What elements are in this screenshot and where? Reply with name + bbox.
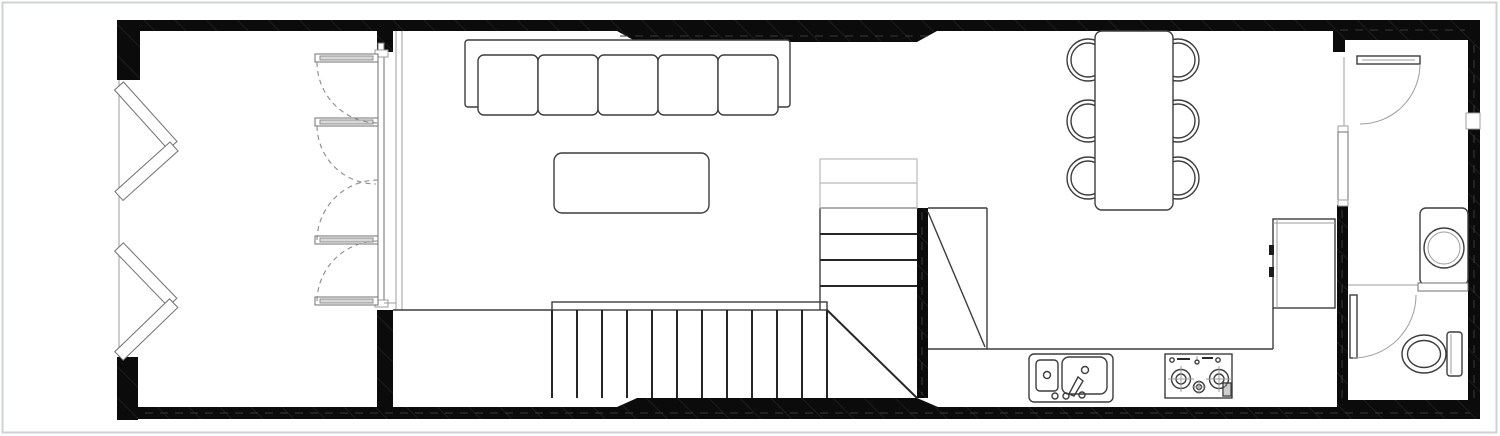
toilet-tank (1447, 332, 1462, 376)
closet-door-1-panel (320, 56, 373, 60)
wall-entry-bottom (377, 310, 393, 407)
wc (1348, 283, 1468, 376)
closet-front-panel (378, 43, 384, 303)
window-chevron-1-upper-bar (115, 82, 177, 149)
wall-top (140, 20, 1333, 31)
window-chevron-1-lower-bar (115, 142, 178, 200)
understair-slope-line (928, 212, 985, 347)
entry (115, 31, 402, 360)
floor-plan (0, 0, 1500, 436)
sofa-cushion-4 (658, 55, 718, 115)
fridge-handle-top (1269, 245, 1274, 255)
closet-door-2-swing (317, 126, 376, 184)
closet-door-4-swing (317, 241, 378, 301)
wall-wc-bottom (1348, 400, 1468, 407)
wc-partition-wall (1418, 283, 1468, 291)
stair-winder-tread (827, 310, 917, 398)
wall-laundry-stub (1333, 40, 1345, 52)
dining-area (1067, 31, 1199, 210)
washing-machine (1420, 208, 1468, 285)
window-chevron-2-lower-bar (115, 299, 178, 360)
dining-table (1095, 31, 1173, 210)
laundry-jamb-bottom (1338, 200, 1348, 206)
laundry-room (1338, 56, 1480, 285)
sofa-cushion-3 (598, 55, 658, 115)
wall-bottom-thick (617, 398, 938, 407)
plan-root (3, 3, 1497, 433)
wall-pillar-top-left (117, 20, 140, 80)
stair-rail (552, 302, 827, 310)
closet-door-4-panel (320, 299, 373, 303)
closet-door-1-swing (317, 62, 378, 123)
wall-pillar-bottom-left (117, 357, 138, 420)
sofa-cushion-2 (538, 55, 598, 115)
floor-plan-canvas (0, 0, 1500, 436)
coffee-table (554, 153, 709, 213)
living-room (465, 40, 790, 213)
sofa-cushion-1 (478, 55, 538, 115)
fridge-handle-bottom (1269, 267, 1274, 277)
laundry-partition-wall (1338, 132, 1348, 200)
wc-door-leaf (1350, 295, 1357, 358)
window-chevron-2-upper-bar (115, 243, 177, 307)
fridge (1273, 219, 1335, 308)
laundry-jamb-top (1338, 126, 1348, 132)
laundry-door-swing (1360, 64, 1420, 124)
closet-door-3-swing (317, 180, 378, 240)
closet-door-3-panel (320, 238, 373, 242)
right-wall-jamb-notch (1466, 113, 1480, 129)
sofa-cushion-5 (718, 55, 778, 115)
kitchen (928, 219, 1335, 402)
